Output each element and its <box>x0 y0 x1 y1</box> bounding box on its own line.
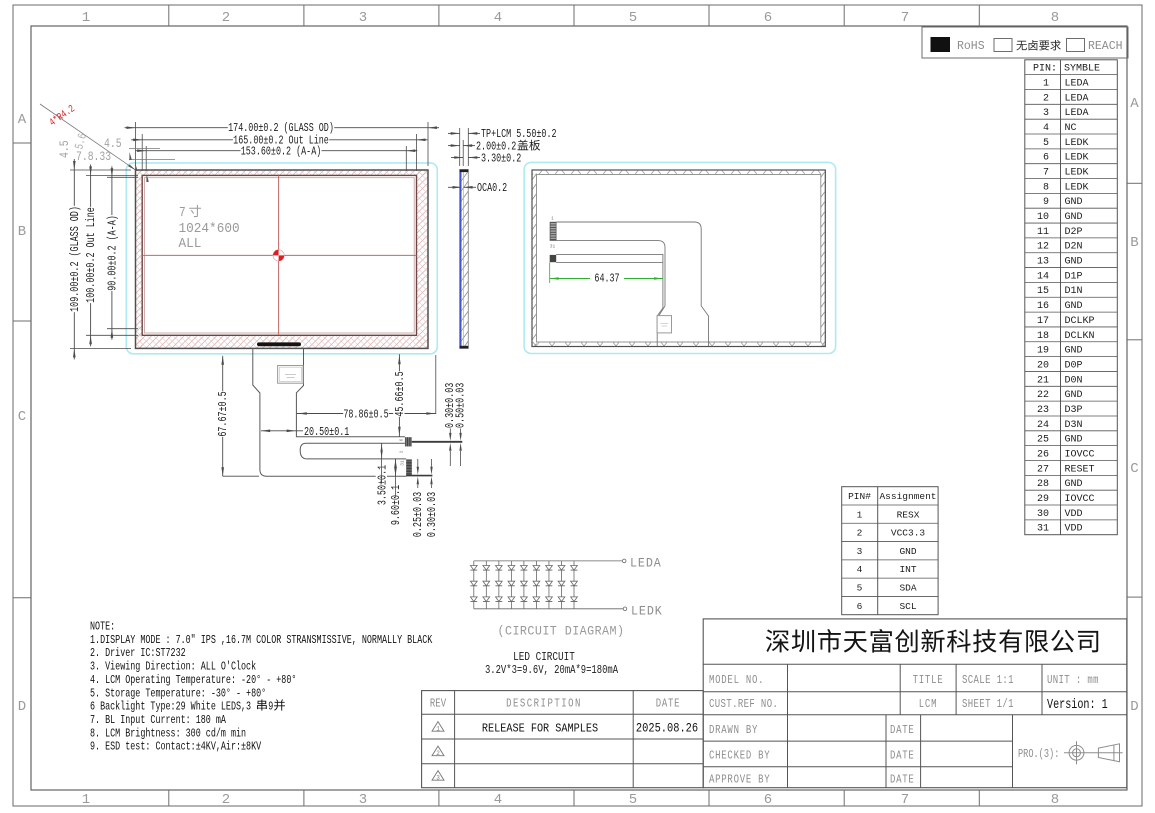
svg-text:GND: GND <box>1065 435 1083 446</box>
svg-text:90.00±0.2 (A-A): 90.00±0.2 (A-A) <box>106 215 120 291</box>
svg-text:3.50±0.1: 3.50±0.1 <box>376 465 390 505</box>
svg-text:LEDA: LEDA <box>630 556 662 571</box>
svg-text:25: 25 <box>1037 435 1049 446</box>
svg-text:9.60±0.1: 9.60±0.1 <box>390 485 404 525</box>
svg-text:6: 6 <box>399 438 405 441</box>
svg-text:REACH: REACH <box>1088 40 1123 53</box>
svg-text:C: C <box>1130 461 1138 477</box>
svg-text:DRAWN BY: DRAWN BY <box>709 724 758 738</box>
svg-text:5: 5 <box>629 792 637 808</box>
svg-text:LCM: LCM <box>919 698 937 712</box>
svg-text:109.00±0.2 (GLASS OD): 109.00±0.2 (GLASS OD) <box>69 206 83 312</box>
svg-text:INT: INT <box>899 564 916 575</box>
svg-text:RESET: RESET <box>1065 464 1095 475</box>
svg-text:1: 1 <box>1043 79 1049 90</box>
svg-text:SCALE 1:1: SCALE 1:1 <box>962 674 1014 688</box>
svg-text:GND: GND <box>1065 212 1083 223</box>
svg-text:3: 3 <box>857 546 863 557</box>
svg-text:LEDA: LEDA <box>1065 79 1089 90</box>
svg-text:1.DISPLAY MODE : 7.0″ IPS ,16.: 1.DISPLAY MODE : 7.0″ IPS ,16.7M COLOR S… <box>90 634 433 648</box>
svg-text:4.5: 4.5 <box>58 140 73 158</box>
svg-text:0.50±0.03: 0.50±0.03 <box>454 383 468 428</box>
svg-text:ALL: ALL <box>179 237 202 253</box>
svg-text:6: 6 <box>857 601 863 612</box>
svg-text:1024*600: 1024*600 <box>179 222 240 238</box>
svg-text:45.66±0.5: 45.66±0.5 <box>394 371 408 416</box>
svg-text:12: 12 <box>1037 242 1049 253</box>
svg-text:4: 4 <box>494 10 502 26</box>
svg-text:15: 15 <box>1037 286 1049 297</box>
svg-text:LEDA: LEDA <box>1065 93 1089 104</box>
svg-text:6: 6 <box>1043 153 1049 164</box>
svg-text:LED CIRCUIT: LED CIRCUIT <box>513 651 575 664</box>
svg-text:153.60±0.2 (A-A): 153.60±0.2 (A-A) <box>241 145 322 159</box>
svg-text:9. ESD test: Contact:±4KV,Air:: 9. ESD test: Contact:±4KV,Air:±8KV <box>90 740 262 754</box>
svg-text:PIN:: PIN: <box>1033 64 1057 75</box>
svg-text:1: 1 <box>551 216 554 222</box>
svg-text:VDD: VDD <box>1065 524 1083 535</box>
svg-text:(CIRCUIT DIAGRAM): (CIRCUIT DIAGRAM) <box>498 624 625 639</box>
svg-text:1: 1 <box>436 726 440 733</box>
svg-text:LEDK: LEDK <box>1065 138 1089 149</box>
svg-text:2: 2 <box>1043 93 1049 104</box>
svg-text:3: 3 <box>359 792 367 808</box>
svg-text:RELEASE FOR SAMPLES: RELEASE FOR SAMPLES <box>482 723 598 736</box>
svg-text:4: 4 <box>1043 123 1049 134</box>
svg-text:DCLKP: DCLKP <box>1065 316 1095 327</box>
svg-text:8. LCM Brightness: 300 cd/m m: 8. LCM Brightness: 300 cd/m min <box>90 727 246 741</box>
svg-text:SYMBLE: SYMBLE <box>1064 64 1100 75</box>
svg-text:2. Driver IC:ST7232: 2. Driver IC:ST7232 <box>90 647 186 661</box>
svg-text:10: 10 <box>1037 212 1049 223</box>
svg-text:VCC3.3: VCC3.3 <box>891 528 926 539</box>
svg-text:MODEL NO.: MODEL NO. <box>709 674 764 688</box>
svg-text:31: 31 <box>400 460 406 466</box>
svg-text:2: 2 <box>222 792 230 808</box>
svg-text:31: 31 <box>550 244 556 250</box>
svg-text:LEDK: LEDK <box>1065 168 1089 179</box>
svg-text:6: 6 <box>764 792 772 808</box>
svg-text:28: 28 <box>1037 479 1049 490</box>
svg-text:1: 1 <box>399 450 405 453</box>
svg-text:29: 29 <box>1037 494 1049 505</box>
svg-text:2: 2 <box>857 528 863 539</box>
svg-text:D0P: D0P <box>1065 361 1083 372</box>
svg-text:SCL: SCL <box>899 601 916 612</box>
svg-text:64.37: 64.37 <box>594 272 619 286</box>
svg-text:1: 1 <box>82 792 90 808</box>
svg-text:30: 30 <box>1037 509 1049 520</box>
svg-text:78.86±0.5: 78.86±0.5 <box>343 408 388 422</box>
svg-text:LEDK: LEDK <box>1065 182 1089 193</box>
svg-text:OCA0.2: OCA0.2 <box>477 182 507 196</box>
svg-text:APPROVE BY: APPROVE BY <box>709 773 770 787</box>
svg-text:GND: GND <box>1065 301 1083 312</box>
svg-text:21: 21 <box>1037 375 1049 386</box>
svg-text:8: 8 <box>1051 10 1059 26</box>
svg-text:PRO.(3):: PRO.(3): <box>1018 748 1059 762</box>
svg-text:6: 6 <box>764 10 772 26</box>
svg-text:3.30±0.2: 3.30±0.2 <box>481 152 521 166</box>
svg-text:D: D <box>18 699 26 715</box>
svg-text:UNIT : mm: UNIT : mm <box>1047 674 1099 688</box>
svg-text:CUST.REF NO.: CUST.REF NO. <box>709 698 778 712</box>
svg-text:D2P: D2P <box>1065 227 1083 238</box>
svg-text:5: 5 <box>857 583 863 594</box>
svg-text:Assignment: Assignment <box>879 491 936 502</box>
svg-text:2: 2 <box>222 10 230 26</box>
svg-text:18: 18 <box>1037 331 1049 342</box>
svg-text:PIN#: PIN# <box>848 491 871 502</box>
svg-text:22: 22 <box>1037 390 1049 401</box>
svg-text:IOVCC: IOVCC <box>1065 494 1095 505</box>
svg-text:GND: GND <box>1065 257 1083 268</box>
svg-text:31: 31 <box>1037 524 1049 535</box>
svg-text:A: A <box>18 112 27 128</box>
svg-text:11: 11 <box>1037 227 1049 238</box>
svg-text:VDD: VDD <box>1065 509 1083 520</box>
svg-text:D2N: D2N <box>1065 242 1083 253</box>
svg-text:7. BL Input Current: 180 mA: 7. BL Input Current: 180 mA <box>90 714 227 728</box>
svg-text:5: 5 <box>1043 138 1049 149</box>
svg-text:7.8.33: 7.8.33 <box>76 150 111 165</box>
svg-text:9: 9 <box>1043 197 1049 208</box>
svg-text:DATE: DATE <box>890 773 915 787</box>
svg-text:27: 27 <box>1037 464 1049 475</box>
svg-text:CHECKED BY: CHECKED BY <box>709 749 770 763</box>
svg-text:3.2V*3=9.6V, 20mA*9=180mA: 3.2V*3=9.6V, 20mA*9=180mA <box>485 664 619 678</box>
svg-text:REV: REV <box>430 697 447 711</box>
svg-text:GND: GND <box>1065 346 1083 357</box>
svg-text:B: B <box>1130 235 1138 251</box>
svg-text:3: 3 <box>436 775 440 782</box>
svg-text:GND: GND <box>1065 197 1083 208</box>
svg-text:67.67±0.5: 67.67±0.5 <box>217 391 231 436</box>
svg-text:3: 3 <box>1043 108 1049 119</box>
svg-text:19: 19 <box>1037 346 1049 357</box>
svg-text:D0N: D0N <box>1065 375 1083 386</box>
svg-text:14: 14 <box>1037 271 1049 282</box>
svg-text:GND: GND <box>1065 390 1083 401</box>
svg-text:SDA: SDA <box>899 583 916 594</box>
svg-text:NC: NC <box>1065 123 1077 134</box>
svg-text:DATE: DATE <box>890 724 915 738</box>
svg-text:7: 7 <box>1043 168 1049 179</box>
svg-text:GND: GND <box>1065 479 1083 490</box>
svg-text:17: 17 <box>1037 316 1049 327</box>
svg-text:3: 3 <box>359 10 367 26</box>
svg-text:7: 7 <box>901 10 909 26</box>
svg-text:24: 24 <box>1037 420 1049 431</box>
svg-text:100.00±0.2 Out Line: 100.00±0.2 Out Line <box>85 207 99 303</box>
svg-text:2025.08.26: 2025.08.26 <box>636 722 698 736</box>
svg-text:1: 1 <box>82 10 90 26</box>
svg-text:7: 7 <box>901 792 909 808</box>
svg-text:DESCRIPTION: DESCRIPTION <box>506 697 582 711</box>
svg-text:DCLKN: DCLKN <box>1065 331 1095 342</box>
svg-text:D3P: D3P <box>1065 405 1083 416</box>
svg-text:6 Backlight Type:29 White LEDS: 6 Backlight Type:29 White LEDS,3 <box>90 700 251 714</box>
svg-text:LEDK: LEDK <box>1065 153 1089 164</box>
svg-text:7: 7 <box>179 205 186 220</box>
svg-text:RESX: RESX <box>897 509 920 520</box>
svg-text:5. Storage Temperature: -30° -: 5. Storage Temperature: -30° - +80° <box>90 687 266 701</box>
svg-text:TITLE: TITLE <box>913 674 944 688</box>
svg-text:D: D <box>1130 699 1138 715</box>
svg-text:0.30±0.03: 0.30±0.03 <box>426 492 440 537</box>
svg-text:0.25±0.03: 0.25±0.03 <box>412 492 426 537</box>
svg-text:4: 4 <box>494 792 502 808</box>
svg-text:LEDA: LEDA <box>1065 108 1089 119</box>
svg-text:4. LCM Operating Temperature:: 4. LCM Operating Temperature: -20° - +80… <box>90 674 296 688</box>
svg-text:26: 26 <box>1037 450 1049 461</box>
svg-text:D1P: D1P <box>1065 271 1083 282</box>
svg-text:C: C <box>18 409 26 425</box>
svg-text:D3N: D3N <box>1065 420 1083 431</box>
svg-text:1: 1 <box>857 509 863 520</box>
svg-text:3. Viewing Direction: ALL O'Cl: 3. Viewing Direction: ALL O'Clock <box>90 660 256 674</box>
svg-text:DATE: DATE <box>656 697 681 711</box>
svg-text:4: 4 <box>857 564 863 575</box>
svg-text:IOVCC: IOVCC <box>1065 450 1095 461</box>
svg-text:SHEET 1/1: SHEET 1/1 <box>962 698 1014 712</box>
svg-text:Version: 1: Version: 1 <box>1047 697 1108 713</box>
svg-text:8: 8 <box>1043 182 1049 193</box>
svg-text:B: B <box>18 224 26 240</box>
svg-text:2: 2 <box>436 750 440 757</box>
svg-text:20.50±0.1: 20.50±0.1 <box>304 426 349 440</box>
svg-text:DATE: DATE <box>890 749 915 763</box>
svg-text:D1N: D1N <box>1065 286 1083 297</box>
svg-text:23: 23 <box>1037 405 1049 416</box>
svg-text:LEDK: LEDK <box>631 604 663 619</box>
svg-text:13: 13 <box>1037 257 1049 268</box>
svg-text:A: A <box>1130 96 1139 112</box>
svg-text:GND: GND <box>899 546 916 557</box>
svg-text:16: 16 <box>1037 301 1049 312</box>
svg-text:20: 20 <box>1037 361 1049 372</box>
svg-text:9: 9 <box>268 700 273 714</box>
svg-text:RoHS: RoHS <box>957 40 985 53</box>
svg-text:8: 8 <box>1051 792 1059 808</box>
svg-text:5: 5 <box>629 10 637 26</box>
svg-text:NOTE:: NOTE: <box>90 620 115 634</box>
